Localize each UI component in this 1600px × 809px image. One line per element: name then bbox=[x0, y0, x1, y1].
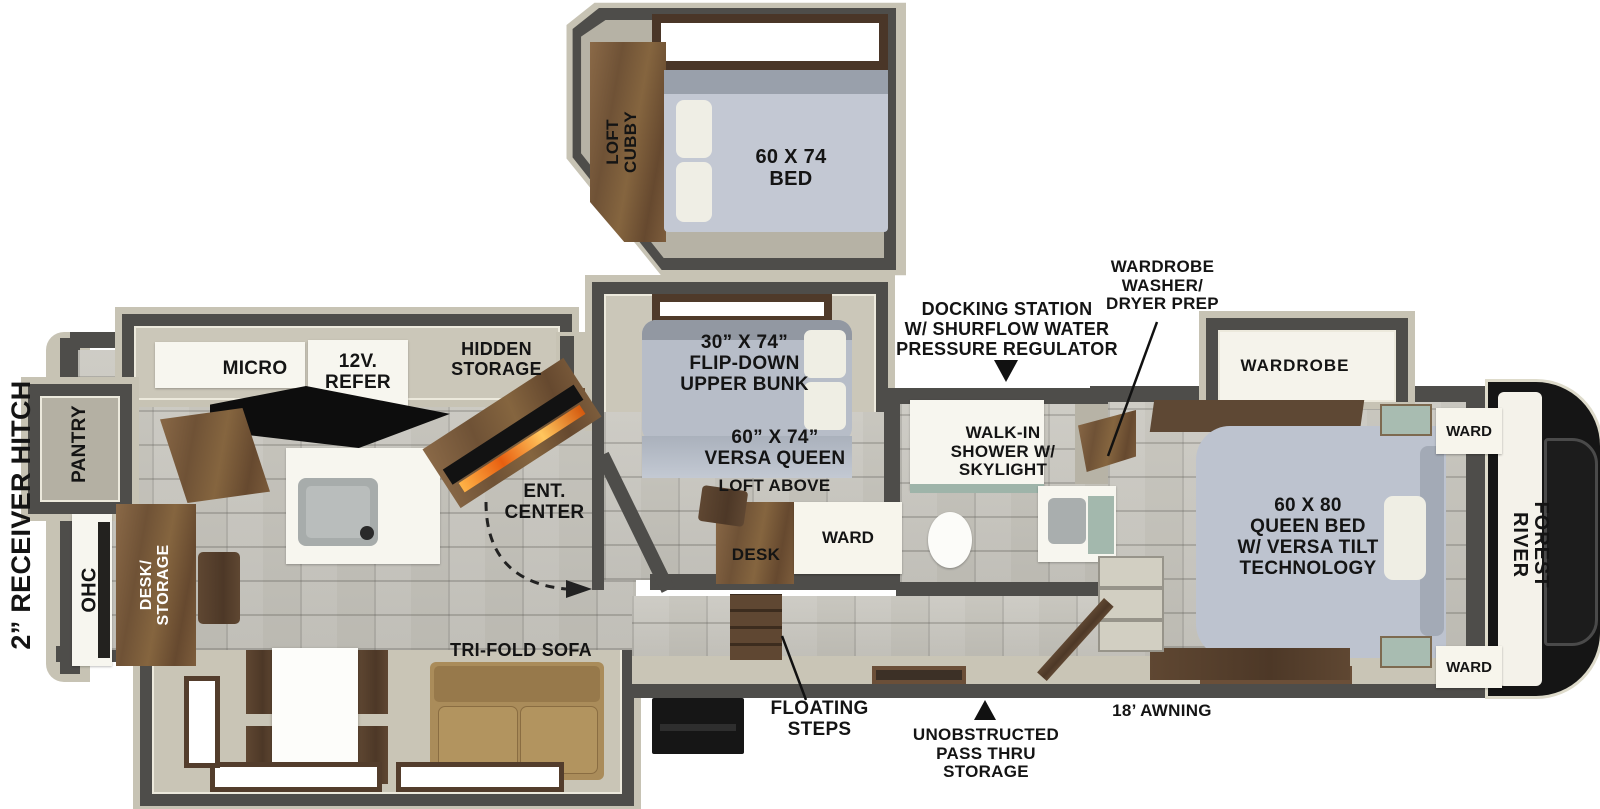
loft-bed-head-band bbox=[664, 70, 888, 94]
dinette-chair bbox=[246, 650, 274, 714]
bedroom-ward-top: WARD bbox=[1436, 408, 1502, 454]
toilet bbox=[928, 512, 972, 568]
kitchen-island bbox=[286, 448, 440, 564]
faucet bbox=[360, 526, 374, 540]
sofa-label: TRI-FOLD SOFA bbox=[432, 641, 610, 661]
sofa-back bbox=[434, 666, 600, 702]
entry-step-box bbox=[652, 698, 744, 754]
ward-top-label: WARD bbox=[1446, 423, 1492, 440]
vanity-sink bbox=[1048, 498, 1086, 544]
loft-window bbox=[652, 14, 888, 70]
nightstand bbox=[1380, 404, 1432, 436]
docking-station-arrow-icon bbox=[994, 360, 1018, 382]
dinette-table bbox=[272, 648, 358, 780]
pass-thru-strip bbox=[632, 596, 1110, 658]
shower-label: WALK-IN SHOWER W/ SKYLIGHT bbox=[938, 424, 1068, 480]
wardrobe-label: WARDROBE bbox=[1220, 357, 1370, 376]
ent-center-label: ENT. CENTER bbox=[472, 482, 617, 524]
versa-queen-label: 60” X 74” VERSA QUEEN bbox=[680, 428, 870, 470]
loft-above-label: LOFT ABOVE bbox=[692, 477, 857, 496]
ohc-label: OHC bbox=[80, 567, 101, 612]
step-box-tread bbox=[660, 724, 736, 731]
shower-glass bbox=[910, 484, 1044, 493]
vanity bbox=[1038, 486, 1116, 562]
upper-bunk-label: 30” X 74” FLIP-DOWN UPPER BUNK bbox=[652, 333, 837, 396]
pass-thru-arrow-icon bbox=[974, 700, 996, 720]
washer-dryer-label: WARDROBE WASHER/ DRYER PREP bbox=[1090, 258, 1235, 314]
receiver-hitch-label: 2” RECEIVER HITCH bbox=[7, 380, 35, 649]
floating-steps-label: FLOATING STEPS bbox=[752, 699, 887, 741]
bunk-ward-cabinet: WARD bbox=[794, 502, 902, 574]
window bbox=[210, 762, 382, 792]
pass-thru-label: UNOBSTRUCTED PASS THRU STORAGE bbox=[902, 726, 1070, 782]
dinette-chair bbox=[358, 650, 388, 714]
bunk-ward-label: WARD bbox=[822, 528, 874, 548]
sink bbox=[298, 478, 378, 546]
bedroom-ward-bottom: WARD bbox=[1436, 646, 1502, 688]
windshield bbox=[1544, 438, 1598, 646]
desk-storage-label: DESK/ STORAGE bbox=[139, 545, 173, 626]
bunk-desk-label: DESK bbox=[716, 546, 796, 565]
ward-bottom-label: WARD bbox=[1446, 659, 1492, 676]
loft-cubby-label: LOFT CUBBY bbox=[604, 111, 640, 173]
floating-steps bbox=[730, 594, 782, 660]
floorplan-canvas: WARD WARD WARD 60 X 74 BED LOFT CUBBY MI… bbox=[0, 0, 1600, 809]
brand-label: FOREST RIVER bbox=[1509, 501, 1551, 588]
bedroom-step bbox=[1098, 556, 1164, 588]
awning-label: 18’ AWNING bbox=[1092, 702, 1232, 721]
pantry-label: PANTRY bbox=[70, 405, 90, 483]
hidden-storage-label: HIDDEN STORAGE bbox=[424, 340, 569, 380]
refer-label: 12V. REFER bbox=[310, 352, 406, 394]
pass-thru-hatch bbox=[872, 666, 966, 684]
desk-chair bbox=[198, 552, 240, 624]
vanity-teal-panel bbox=[1088, 496, 1114, 554]
bedroom-step bbox=[1098, 620, 1164, 652]
window bbox=[184, 676, 220, 768]
loft-bed-label: 60 X 74 BED bbox=[700, 146, 882, 190]
queen-bed-label: 60 X 80 QUEEN BED W/ VERSA TILT TECHNOLO… bbox=[1210, 496, 1406, 580]
nightstand bbox=[1380, 636, 1432, 668]
bedroom-dresser bbox=[1150, 648, 1350, 680]
micro-label: MICRO bbox=[196, 359, 314, 380]
bottom-exterior-wall bbox=[628, 684, 1488, 698]
window bbox=[396, 762, 564, 792]
